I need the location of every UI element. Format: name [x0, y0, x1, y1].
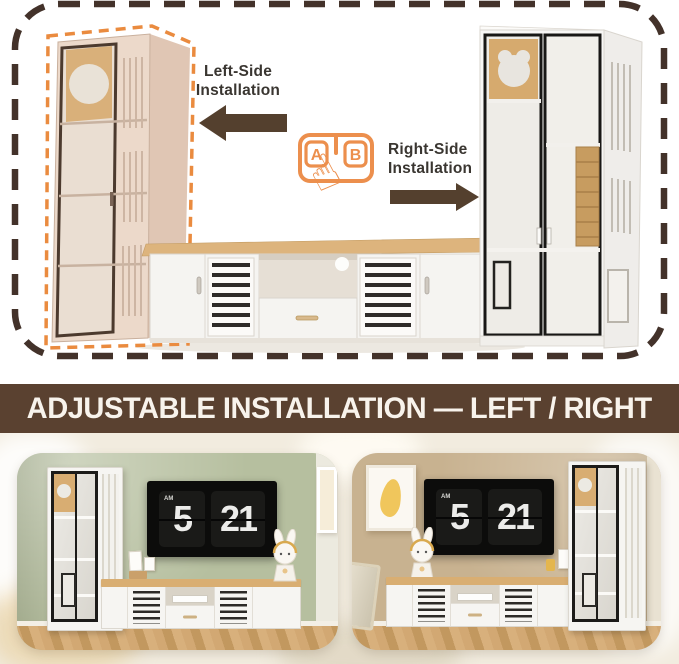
bunny-figurine: [404, 527, 440, 581]
flip-clock-hour-card: AM 5: [436, 489, 482, 545]
door-handle-right: [425, 277, 429, 294]
cabinet-cat-panel: [54, 474, 75, 512]
console-louver-door: [413, 585, 451, 626]
console-louver-door: [500, 585, 538, 626]
flip-split-line: [159, 519, 205, 521]
decor-photo-frame: [144, 557, 155, 571]
bunny-figurine: [267, 529, 303, 583]
left-side-installation-label: Left-Side Installation: [182, 62, 294, 101]
media-player: [172, 595, 208, 603]
open-compartment: [259, 254, 357, 298]
console-drawer: [259, 298, 357, 340]
console-drawer: [166, 605, 214, 628]
right-side-installation-label: Right-Side Installation: [388, 140, 488, 179]
cabinet-lower-frame: [61, 573, 76, 607]
cabinet-glass-doors: [51, 471, 98, 622]
louver-door-right: [360, 258, 416, 336]
drawer-handle: [183, 616, 197, 619]
cabinet-cat-panel: [575, 468, 596, 506]
right-cabinet: [480, 26, 642, 348]
console-open-shelf: [166, 587, 214, 605]
cat-hole: [578, 478, 592, 492]
cabinet-lower-frame: [582, 573, 597, 607]
console-body: [386, 585, 586, 627]
console-louver-door: [128, 587, 166, 628]
left-arrow-icon: [199, 105, 287, 141]
side-cutout: [608, 270, 628, 322]
decor-box: [129, 571, 147, 579]
scene-cabinet-right-side: [568, 461, 646, 631]
scene-tv-console: [386, 577, 586, 627]
decor-photo-frame: [128, 551, 142, 572]
flip-split-line: [436, 517, 482, 519]
installation-diagram-section: A B ☝ Left-Side Installation Right-Side …: [0, 0, 679, 384]
console-center: [166, 587, 215, 628]
tv-screen: AM 5 21: [147, 481, 277, 557]
tv-screen: AM 5 21: [424, 479, 554, 555]
console-drawer: [451, 603, 499, 626]
console-open-shelf: [451, 585, 499, 603]
louver-slats: [505, 589, 532, 622]
cabinet-glass-doors: [572, 465, 619, 622]
cat-panel: [489, 39, 538, 99]
media-player: [457, 593, 493, 601]
louver-slats: [220, 591, 247, 624]
edge-picture-frame: [317, 467, 337, 533]
glass-handle-right: [547, 228, 551, 244]
scene-tv-console: [101, 579, 301, 629]
right-installation-photo: AM 5 21: [352, 453, 661, 650]
cabinet-side-vents: [625, 468, 642, 618]
product-infographic: A B ☝ Left-Side Installation Right-Side …: [0, 0, 679, 664]
drawer-handle: [468, 614, 482, 617]
clock-meridiem: AM: [164, 496, 173, 502]
tv-console: [142, 238, 494, 343]
headline-banner: ADJUSTABLE INSTALLATION — LEFT / RIGHT: [0, 384, 679, 433]
decor-trophy: [546, 559, 555, 571]
flip-clock-minute-card: 21: [211, 491, 265, 547]
wall-art-frame: [366, 465, 416, 531]
storage-basket: [576, 147, 599, 246]
cable-hole: [335, 257, 349, 271]
headline-text: ADJUSTABLE INSTALLATION — LEFT / RIGHT: [27, 392, 652, 426]
console-louver-door: [215, 587, 253, 628]
clock-meridiem: AM: [441, 494, 450, 500]
console-door: [102, 587, 128, 628]
console-door: [253, 587, 301, 628]
console-center: [451, 585, 500, 626]
lower-inner-frame: [494, 262, 510, 308]
flip-split-line: [488, 517, 542, 519]
glass-handle-left: [537, 228, 541, 244]
flip-clock-minute-card: 21: [488, 489, 542, 545]
louver-slats: [418, 589, 445, 622]
leaf-artwork: [378, 478, 404, 519]
console-wood-top: [386, 577, 586, 585]
louver-slats: [133, 591, 160, 624]
cat-hole: [57, 484, 71, 498]
console-door: [387, 585, 413, 626]
louver-door-left: [208, 258, 254, 336]
flip-split-line: [211, 519, 265, 521]
door-handle-left: [197, 277, 201, 294]
keycap-b-label: B: [350, 147, 362, 164]
right-arrow-icon: [390, 183, 479, 211]
flip-clock-hour-card: AM 5: [159, 491, 205, 547]
left-installation-photo: AM 5 21: [17, 453, 338, 650]
console-body: [101, 587, 301, 629]
